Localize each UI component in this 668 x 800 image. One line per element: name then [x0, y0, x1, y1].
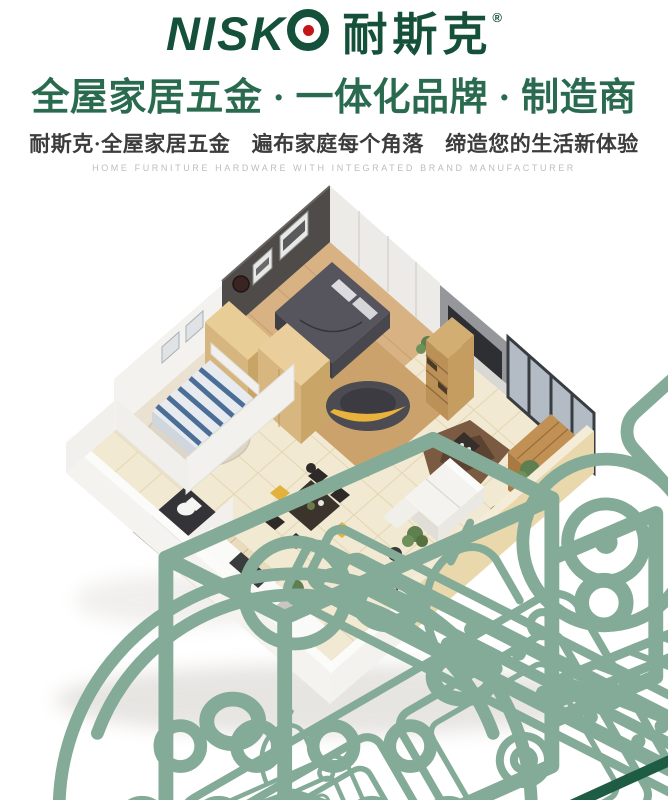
brand-logo: NISK耐斯克® [0, 8, 668, 57]
wall-clock [233, 276, 249, 292]
page-title: 全屋家居五金 · 一体化品牌 · 制造商 [0, 66, 668, 121]
registered-mark: ® [492, 10, 502, 25]
logo-chinese-text: 耐斯克 [342, 9, 492, 60]
header: NISK耐斯克® 全屋家居五金 · 一体化品牌 · 制造商 耐斯克·全屋家居五金… [0, 0, 668, 173]
logo-o-icon [287, 9, 329, 51]
logo-latin-text: NISK [166, 7, 286, 60]
logo-red-dot [303, 25, 314, 36]
english-caption: HOME FURNITURE HARDWARE WITH INTEGRATED … [0, 163, 668, 173]
lounge-daybed [326, 381, 410, 431]
page-subtitle: 耐斯克·全屋家居五金 遍布家庭每个角落 缔造您的生活新体验 [0, 128, 668, 158]
